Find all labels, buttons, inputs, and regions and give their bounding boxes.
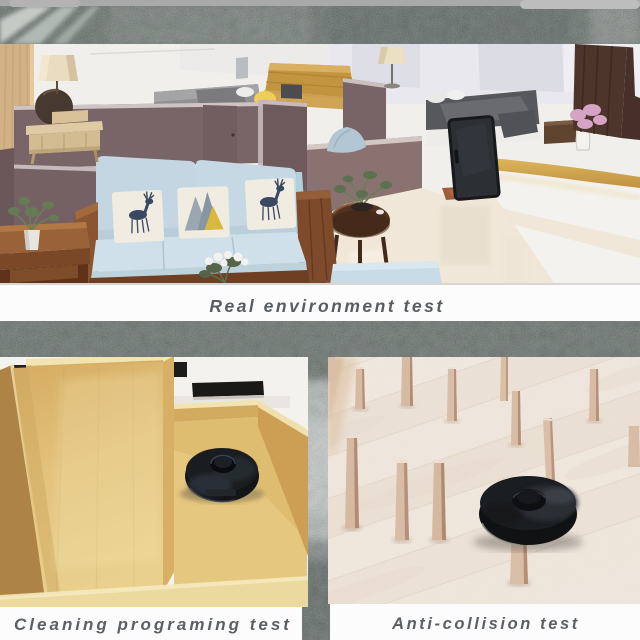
svg-text:Cleaning programing test: Cleaning programing test bbox=[14, 615, 292, 634]
svg-text:Real environment test: Real environment test bbox=[209, 296, 444, 316]
svg-text:Anti-collision test: Anti-collision test bbox=[391, 615, 580, 633]
